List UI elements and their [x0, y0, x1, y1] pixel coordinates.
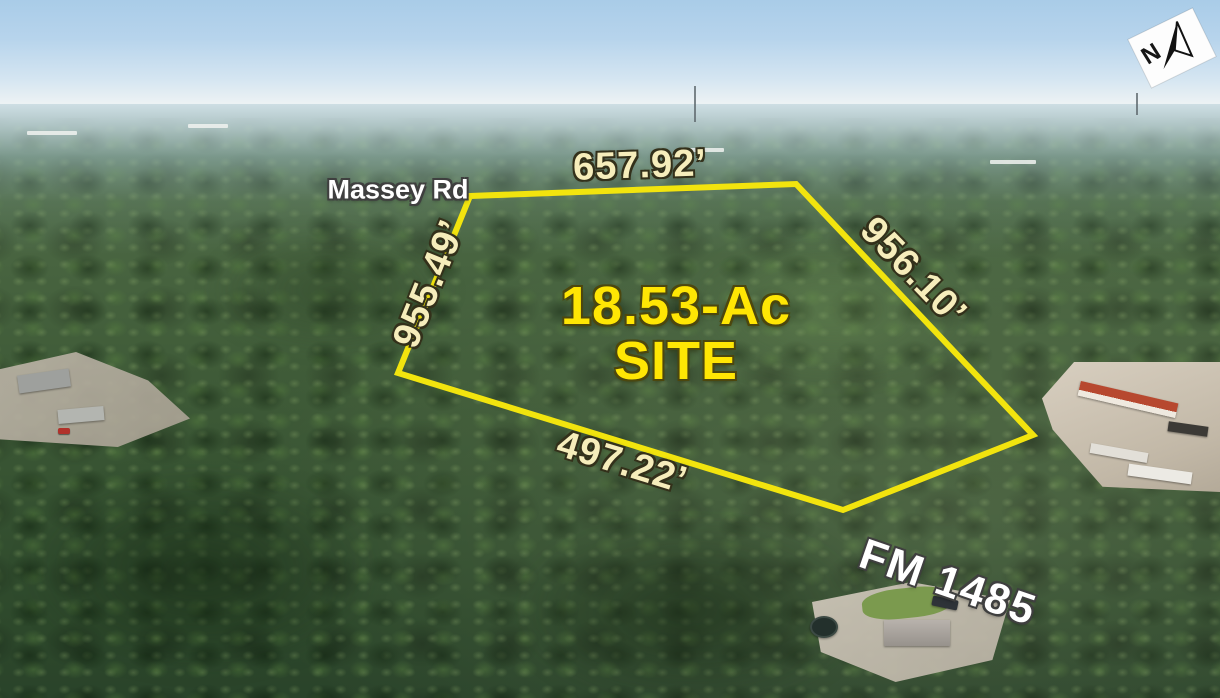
site-acreage-value: 18.53-Ac — [561, 279, 791, 334]
north-arrow-icon: N — [1128, 8, 1216, 88]
road-label-massey-rd: Massey Rd — [327, 175, 468, 206]
boundary-length-top: 657.92’ — [572, 142, 707, 190]
aerial-photo: N 657.92’ 955.49’ 956.10’ 497.22’ 18.53-… — [0, 0, 1220, 698]
site-word: SITE — [561, 334, 791, 389]
site-acreage-label: 18.53-Ac SITE — [561, 279, 791, 389]
